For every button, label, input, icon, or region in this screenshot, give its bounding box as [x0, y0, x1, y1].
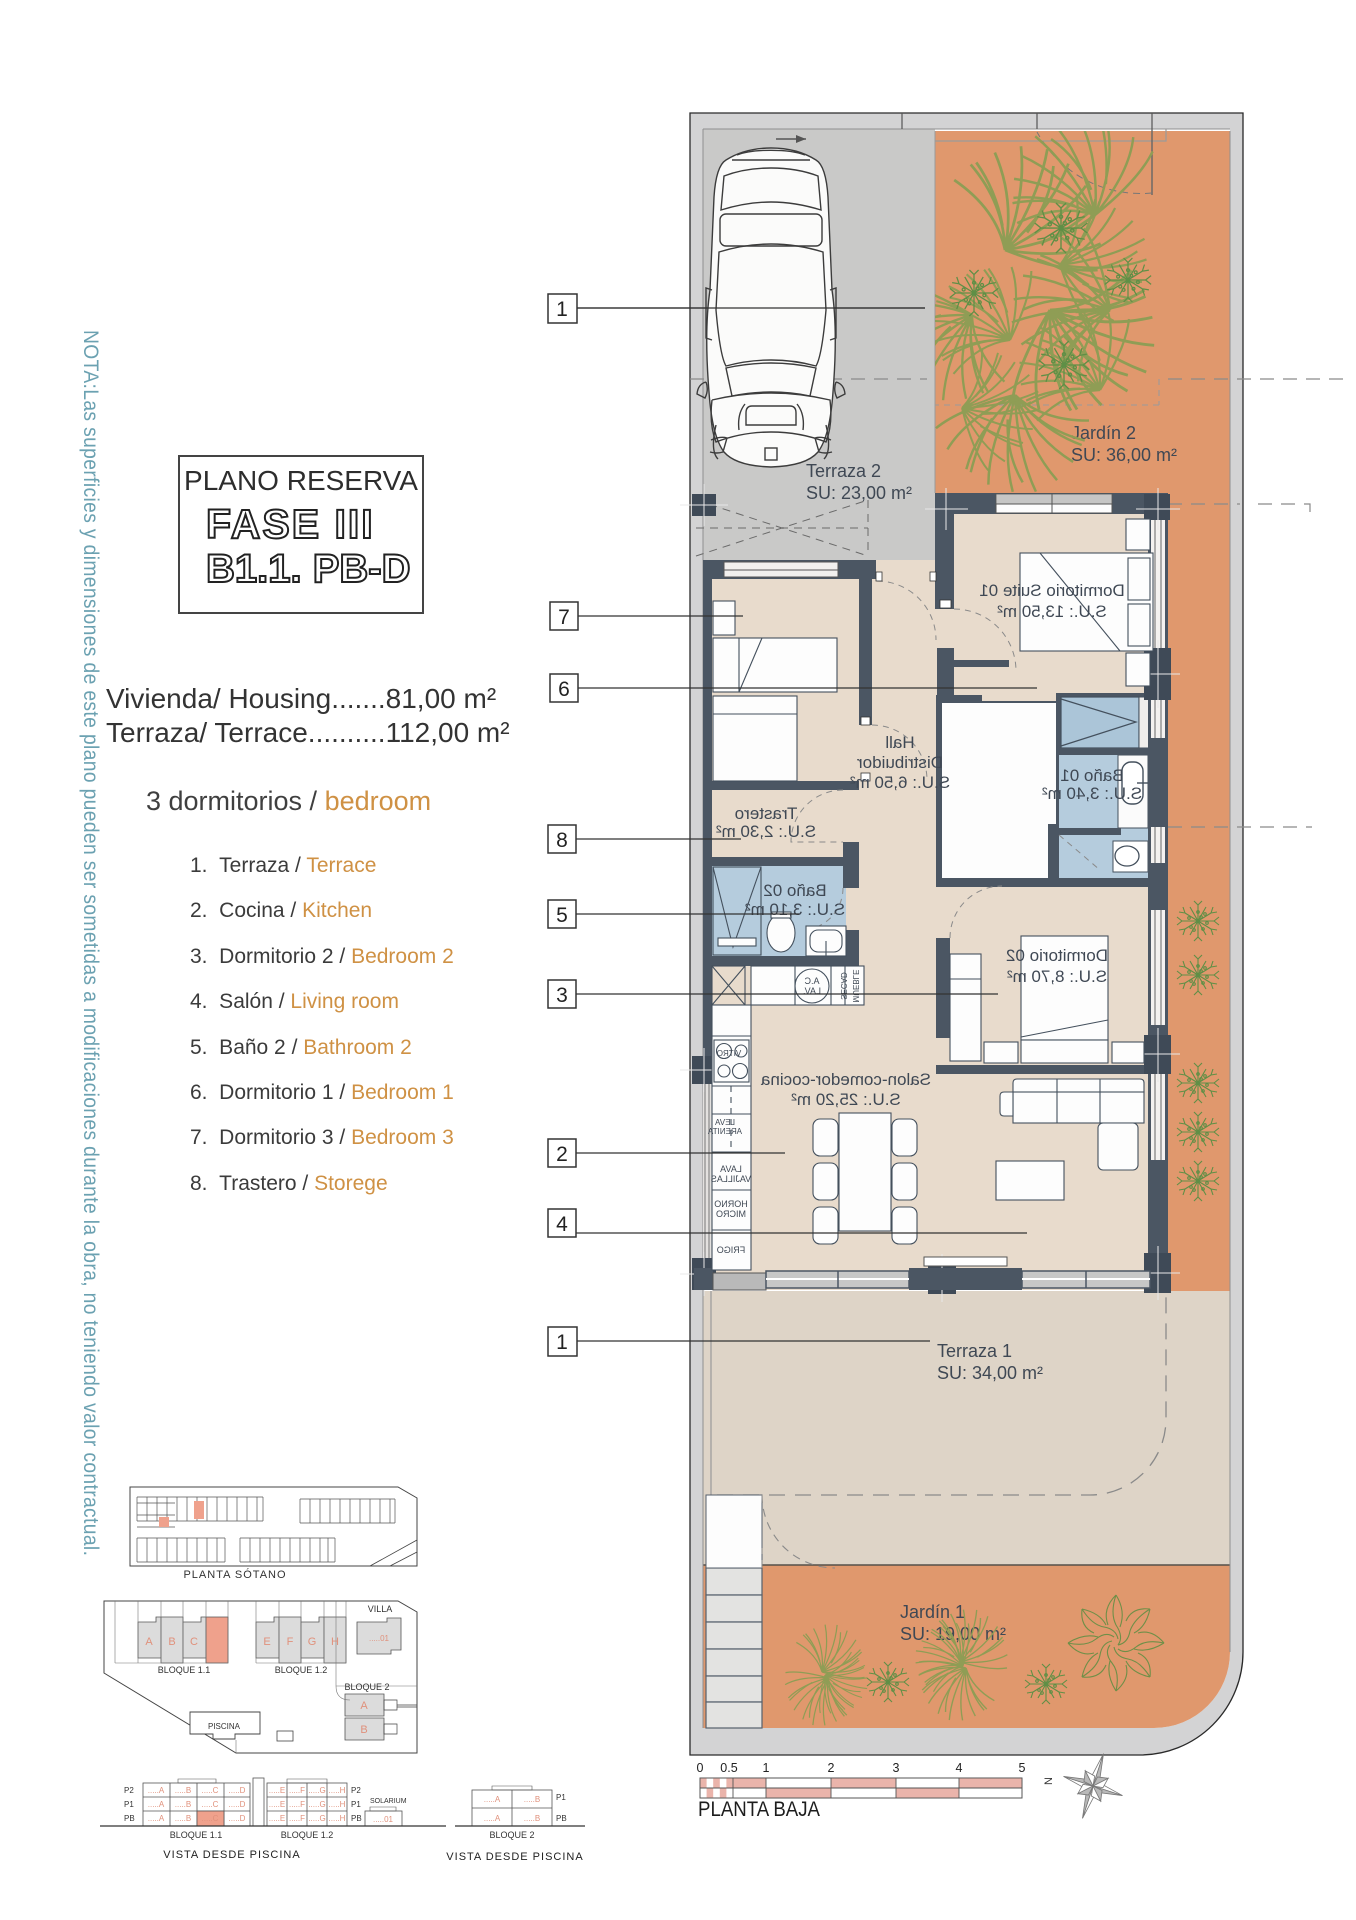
svg-text:.....F: .....F [289, 1800, 305, 1809]
svg-text:FRIGO: FRIGO [717, 1245, 746, 1255]
svg-text:.....C: .....C [202, 1814, 219, 1823]
svg-text:SU: 34,00 m²: SU: 34,00 m² [937, 1363, 1043, 1383]
svg-text:SU: 36,00 m²: SU: 36,00 m² [1071, 445, 1177, 465]
svg-text:Baño 02: Baño 02 [763, 881, 826, 900]
svg-text:BLOQUE 1.2: BLOQUE 1.2 [275, 1665, 328, 1675]
svg-text:P2: P2 [351, 1786, 361, 1795]
svg-text:.....F: .....F [289, 1814, 305, 1823]
svg-text:.....A: .....A [484, 1795, 501, 1804]
svg-text:.....A: .....A [148, 1786, 165, 1795]
svg-text:VITRO: VITRO [717, 1049, 741, 1058]
svg-text:MUEBLE: MUEBLE [851, 970, 860, 1003]
svg-text:.....B: .....B [175, 1786, 191, 1795]
svg-text:.....H: .....H [329, 1814, 346, 1823]
svg-text:HORNO: HORNO [714, 1199, 748, 1209]
svg-text:P2: P2 [124, 1786, 134, 1795]
svg-text:P1: P1 [556, 1793, 566, 1802]
svg-text:B: B [168, 1636, 175, 1648]
svg-text:.....A: .....A [148, 1814, 165, 1823]
svg-text:PB: PB [351, 1814, 362, 1823]
svg-text:A: A [360, 1700, 368, 1712]
svg-text:B: B [360, 1724, 367, 1736]
svg-text:.....G: .....G [308, 1814, 325, 1823]
svg-text:PLANTA SÓTANO: PLANTA SÓTANO [183, 1568, 286, 1581]
svg-text:Salon-comedor-cocina: Salon-comedor-cocina [760, 1070, 931, 1089]
svg-text:.....B: .....B [524, 1795, 540, 1804]
svg-text:.....01: .....01 [373, 1815, 394, 1824]
svg-text:G: G [308, 1636, 317, 1648]
svg-text:.....G: .....G [308, 1800, 325, 1809]
svg-text:LEVA: LEVA [714, 1118, 735, 1127]
svg-text:VISTA DESDE PISCINA: VISTA DESDE PISCINA [446, 1851, 583, 1863]
svg-text:BLOQUE 2: BLOQUE 2 [489, 1830, 534, 1840]
svg-text:7: 7 [558, 606, 570, 629]
svg-text:2: 2 [556, 1143, 568, 1166]
svg-text:1: 1 [556, 1331, 568, 1354]
svg-text:.....01: .....01 [369, 1634, 390, 1643]
svg-text:3: 3 [556, 984, 568, 1007]
svg-text:LAVA: LAVA [720, 1164, 742, 1174]
svg-text:Baño 01: Baño 01 [1060, 766, 1123, 785]
svg-text:Dormitorio 02: Dormitorio 02 [1006, 946, 1108, 965]
svg-text:4: 4 [556, 1213, 568, 1236]
svg-text:S.U.: 2,30 m²: S.U.: 2,30 m² [716, 822, 816, 841]
svg-text:S.U.: 25,20 m²: S.U.: 25,20 m² [791, 1090, 901, 1109]
svg-text:.....B: .....B [175, 1814, 191, 1823]
svg-text:S.U.: 3,40 m²: S.U.: 3,40 m² [1042, 784, 1142, 803]
svg-text:H: H [331, 1636, 339, 1648]
svg-text:P1: P1 [351, 1800, 361, 1809]
svg-text:BLOQUE 2: BLOQUE 2 [344, 1682, 389, 1692]
svg-text:Distribuidor: Distribuidor [857, 753, 943, 772]
svg-text:.....A: .....A [148, 1800, 165, 1809]
svg-text:BLOQUE 1.1: BLOQUE 1.1 [170, 1830, 223, 1840]
svg-text:Jardín 1: Jardín 1 [900, 1602, 965, 1622]
svg-text:.....H: .....H [329, 1800, 346, 1809]
svg-text:PB: PB [556, 1814, 567, 1823]
svg-text:.....B: .....B [524, 1814, 540, 1823]
svg-text:PLANTA BAJA: PLANTA BAJA [698, 1797, 821, 1821]
svg-text:.....D: .....D [229, 1786, 246, 1795]
svg-text:0: 0 [697, 1761, 704, 1775]
svg-text:3: 3 [893, 1761, 900, 1775]
svg-text:SU: 23,00 m²: SU: 23,00 m² [806, 483, 912, 503]
svg-text:S.U.: 6,50 m²: S.U.: 6,50 m² [850, 773, 950, 792]
svg-text:.....A: .....A [484, 1814, 501, 1823]
svg-text:Hall: Hall [885, 733, 914, 752]
svg-text:4: 4 [956, 1761, 963, 1775]
svg-text:.....D: .....D [229, 1800, 246, 1809]
svg-text:Trastero: Trastero [735, 804, 798, 823]
svg-text:.....H: .....H [329, 1786, 346, 1795]
svg-text:2: 2 [828, 1761, 835, 1775]
svg-text:Terraza 2: Terraza 2 [806, 461, 881, 481]
svg-text:A.C: A.C [804, 976, 820, 986]
svg-text:SECAD: SECAD [839, 972, 848, 1000]
svg-text:MICRO: MICRO [716, 1209, 746, 1219]
svg-text:.....G: .....G [308, 1786, 325, 1795]
svg-text:N: N [1043, 1777, 1055, 1785]
svg-text:5: 5 [1019, 1761, 1026, 1775]
svg-text:ARENITA: ARENITA [707, 1127, 742, 1136]
svg-text:8: 8 [556, 829, 568, 852]
svg-text:Terraza 1: Terraza 1 [937, 1341, 1012, 1361]
svg-text:F: F [287, 1636, 294, 1648]
svg-text:S.U.: 8,70 m²: S.U.: 8,70 m² [1007, 967, 1107, 986]
svg-text:.....B: .....B [175, 1800, 191, 1809]
svg-text:C: C [190, 1636, 198, 1648]
svg-text:.....C: .....C [202, 1800, 219, 1809]
svg-text:6: 6 [558, 678, 570, 701]
svg-text:1: 1 [556, 298, 568, 321]
svg-text:BLOQUE 1.1: BLOQUE 1.1 [158, 1665, 211, 1675]
svg-text:A: A [145, 1636, 153, 1648]
svg-text:0.5: 0.5 [720, 1761, 737, 1775]
svg-text:VAJILLAS: VAJILLAS [711, 1174, 751, 1184]
svg-text:1: 1 [763, 1761, 770, 1775]
svg-text:.....E: .....E [269, 1786, 285, 1795]
svg-text:SOLARIUM: SOLARIUM [370, 1798, 407, 1805]
svg-text:.....C: .....C [202, 1786, 219, 1795]
svg-text:Dormitorio Suite 01: Dormitorio Suite 01 [979, 581, 1125, 600]
svg-text:S.U.: 13,50 m²: S.U.: 13,50 m² [997, 602, 1107, 621]
svg-text:.....F: .....F [289, 1786, 305, 1795]
svg-text:VILLA: VILLA [368, 1604, 393, 1614]
svg-text:E: E [263, 1636, 270, 1648]
svg-text:PISCINA: PISCINA [208, 1722, 241, 1731]
svg-text:P1: P1 [124, 1800, 134, 1809]
svg-text:S.U.: 3,10 m²: S.U.: 3,10 m² [745, 900, 845, 919]
svg-text:.....D: .....D [229, 1814, 246, 1823]
svg-text:PB: PB [124, 1814, 135, 1823]
svg-text:.....E: .....E [269, 1814, 285, 1823]
svg-text:BLOQUE 1.2: BLOQUE 1.2 [281, 1830, 334, 1840]
svg-text:.....E: .....E [269, 1800, 285, 1809]
svg-text:VISTA DESDE PISCINA: VISTA DESDE PISCINA [163, 1849, 300, 1861]
svg-text:5: 5 [556, 904, 568, 927]
